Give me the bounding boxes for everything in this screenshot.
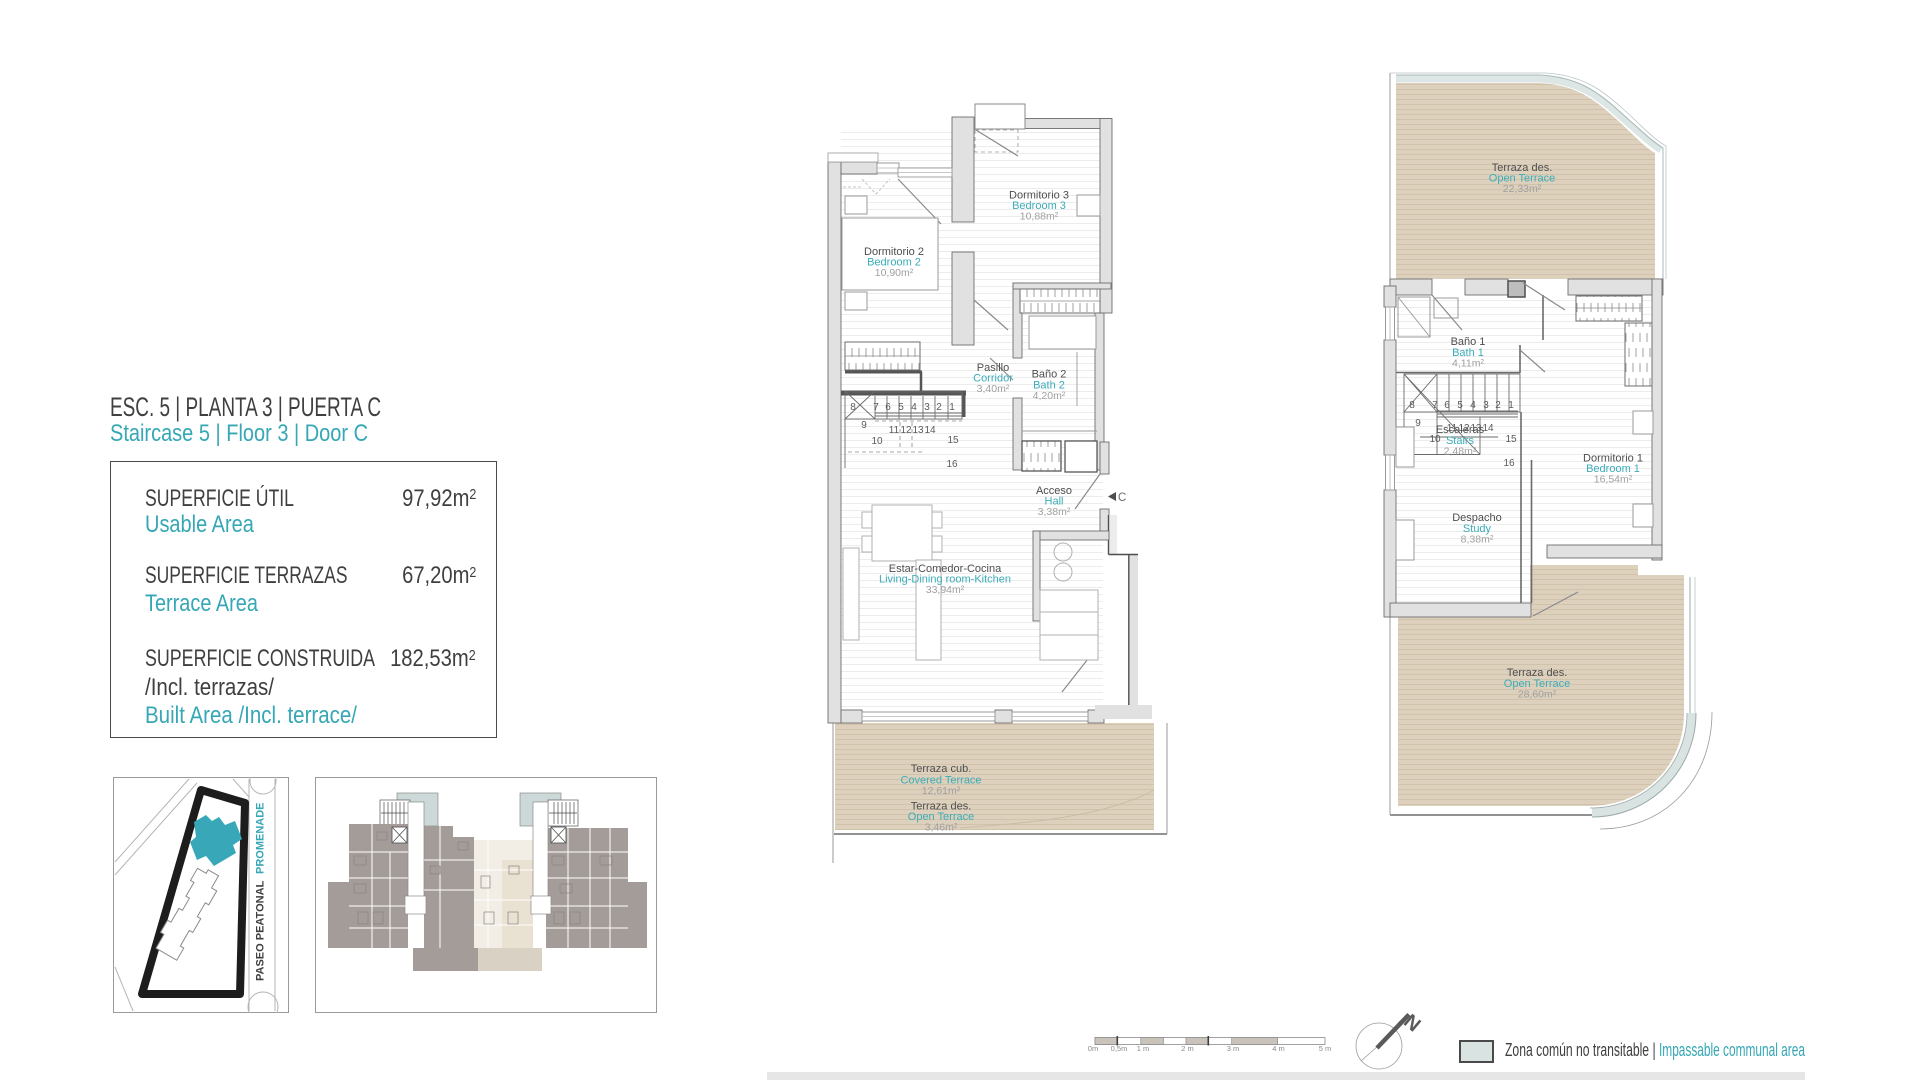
svg-text:0,5m: 0,5m — [1111, 1044, 1128, 1053]
svg-text:13: 13 — [912, 425, 924, 436]
svg-text:3: 3 — [1483, 400, 1489, 411]
svg-text:14: 14 — [1482, 423, 1494, 434]
svg-text:12: 12 — [900, 425, 912, 436]
svg-text:7: 7 — [873, 402, 879, 413]
svg-text:8: 8 — [1409, 400, 1415, 411]
svg-text:PASEO PEATONAL: PASEO PEATONAL — [255, 880, 267, 981]
svg-text:3 m: 3 m — [1227, 1044, 1240, 1053]
svg-text:1: 1 — [1508, 400, 1514, 411]
svg-text:8,38m²: 8,38m² — [1461, 534, 1494, 546]
svg-text:5 m: 5 m — [1319, 1044, 1332, 1053]
svg-text:16,54m²: 16,54m² — [1594, 474, 1633, 486]
svg-text:2: 2 — [936, 402, 942, 413]
svg-text:1 m: 1 m — [1137, 1044, 1150, 1053]
svg-text:2 m: 2 m — [1181, 1044, 1194, 1053]
svg-text:4: 4 — [911, 402, 917, 413]
svg-text:3: 3 — [924, 402, 930, 413]
svg-text:10,90m²: 10,90m² — [875, 267, 914, 279]
svg-text:22,33m²: 22,33m² — [1503, 183, 1542, 195]
svg-text:5: 5 — [1457, 400, 1463, 411]
svg-text:9: 9 — [861, 420, 867, 431]
svg-text:0m: 0m — [1088, 1044, 1098, 1053]
svg-text:10,88m²: 10,88m² — [1020, 211, 1059, 223]
svg-text:6: 6 — [885, 402, 891, 413]
svg-text:15: 15 — [947, 435, 959, 446]
svg-text:14: 14 — [924, 425, 936, 436]
svg-text:Terraza cub.: Terraza cub. — [911, 763, 972, 775]
svg-text:33,94m²: 33,94m² — [926, 584, 965, 596]
svg-text:3,46m²: 3,46m² — [925, 822, 958, 834]
svg-text:2,48m²: 2,48m² — [1444, 446, 1477, 458]
svg-text:4 m: 4 m — [1272, 1044, 1285, 1053]
svg-text:1: 1 — [949, 402, 955, 413]
svg-text:3,38m²: 3,38m² — [1038, 506, 1071, 518]
svg-text:5: 5 — [898, 402, 904, 413]
svg-text:12,61m²: 12,61m² — [922, 785, 961, 797]
svg-text:16: 16 — [1503, 458, 1515, 469]
svg-text:8: 8 — [850, 402, 856, 413]
svg-text:C: C — [1118, 492, 1126, 504]
svg-text:6: 6 — [1444, 400, 1450, 411]
svg-text:11: 11 — [889, 425, 900, 436]
svg-text:7: 7 — [1432, 400, 1438, 411]
svg-text:9: 9 — [1415, 418, 1421, 429]
svg-text:4: 4 — [1470, 400, 1476, 411]
svg-text:4,11m²: 4,11m² — [1452, 358, 1484, 370]
svg-text:16: 16 — [946, 459, 958, 470]
svg-text:3,40m²: 3,40m² — [977, 383, 1010, 395]
svg-text:15: 15 — [1505, 434, 1517, 445]
svg-text:2: 2 — [1495, 400, 1501, 411]
svg-text:10: 10 — [871, 436, 883, 447]
svg-text:N: N — [1399, 1010, 1424, 1036]
svg-text:28,60m²: 28,60m² — [1518, 689, 1557, 701]
svg-text:4,20m²: 4,20m² — [1033, 390, 1066, 402]
svg-text:PROMENADE: PROMENADE — [255, 802, 267, 874]
